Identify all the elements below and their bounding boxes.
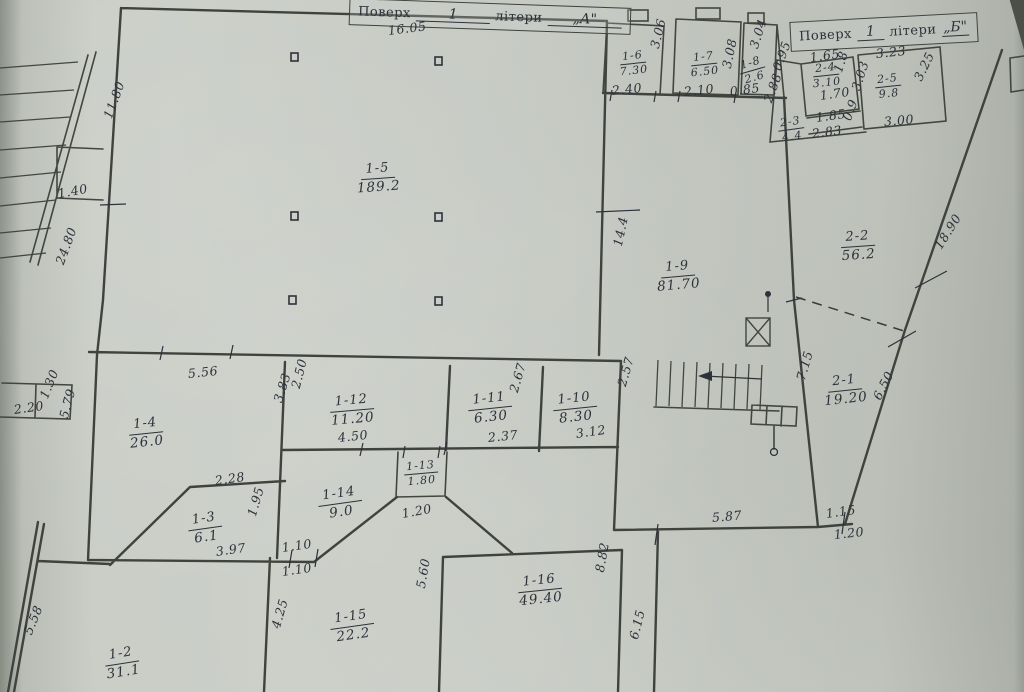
room-label-2-2: 2-256.2 <box>820 223 896 266</box>
room-label-1-12: 1-1211.20 <box>314 387 391 431</box>
floor-label: Поверх <box>799 26 853 44</box>
room-label-1-13: 1-131.80 <box>383 452 460 491</box>
floor-label: Поверх <box>358 4 411 21</box>
shaft-box <box>746 318 770 346</box>
stair-treads <box>656 360 762 410</box>
floor-value: 1 <box>856 24 884 41</box>
dimension-ticks <box>100 90 947 568</box>
duct-boxes <box>628 8 764 23</box>
dimension-label: 1.20 <box>833 526 864 542</box>
stair-arrow-head <box>698 371 712 381</box>
letter-value: „А" <box>547 11 622 29</box>
room-label-1-16: 1-1649.40 <box>501 566 579 611</box>
dimension-label: 3.23 <box>875 45 906 61</box>
room-label-1-9: 1-981.70 <box>640 253 717 297</box>
letter-label: літери <box>889 22 937 39</box>
dimension-label: 5.56 <box>187 365 218 381</box>
dashed-boundary <box>796 297 904 331</box>
floor-value: 1 <box>416 6 491 24</box>
dimension-label: 2.40 <box>611 82 642 98</box>
floor-plan-canvas: Поверх 1 літери „А" Поверх 1 літери „Б" … <box>0 0 1024 692</box>
wall-point <box>765 291 771 297</box>
letter-value: „Б" <box>941 20 969 37</box>
stair-arrow <box>704 376 762 379</box>
dimension-label: 5.87 <box>711 509 742 524</box>
dimension-label: 2.10 <box>683 83 714 99</box>
letter-label: літери <box>495 9 543 26</box>
dimension-label: 4.50 <box>337 429 368 445</box>
dimension-label: 3.00 <box>883 113 914 128</box>
room-label-1-4: 1-426.0 <box>107 409 185 454</box>
dimension-label: 2.37 <box>487 429 518 445</box>
room-label-1-5: 1-5189.2 <box>340 155 416 198</box>
